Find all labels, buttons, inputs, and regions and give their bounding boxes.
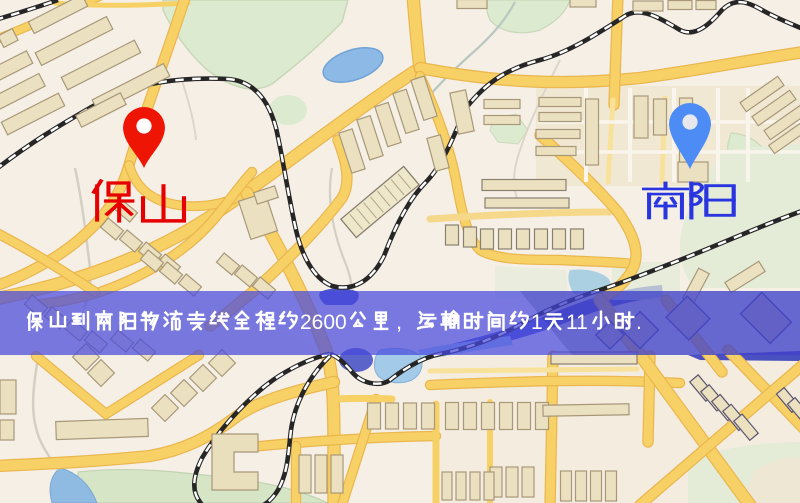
svg-text:,: , (396, 309, 402, 334)
svg-text:1: 1 (531, 311, 543, 334)
svg-text:.: . (636, 311, 642, 334)
svg-text:2600: 2600 (300, 311, 347, 334)
svg-text:11: 11 (566, 311, 588, 334)
